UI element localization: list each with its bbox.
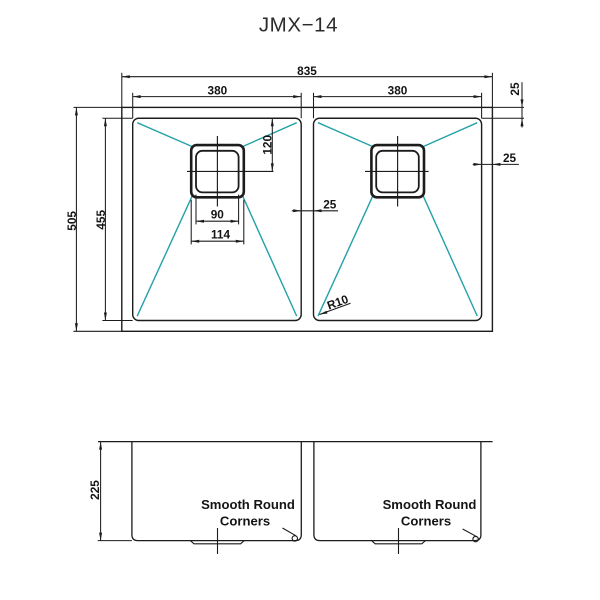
svg-text:JMX−14: JMX−14 — [259, 13, 338, 36]
svg-text:Corners: Corners — [220, 513, 270, 528]
svg-text:120: 120 — [260, 135, 274, 155]
svg-text:Smooth Round: Smooth Round — [383, 497, 477, 512]
svg-text:25: 25 — [508, 82, 522, 96]
svg-text:90: 90 — [211, 208, 225, 222]
svg-text:114: 114 — [211, 228, 230, 242]
svg-text:Smooth Round: Smooth Round — [201, 497, 295, 512]
svg-text:225: 225 — [88, 480, 102, 500]
svg-text:380: 380 — [388, 84, 408, 98]
svg-text:835: 835 — [297, 64, 317, 78]
svg-text:25: 25 — [503, 151, 517, 165]
svg-text:25: 25 — [323, 198, 337, 212]
svg-text:505: 505 — [65, 211, 79, 231]
svg-text:380: 380 — [208, 84, 228, 98]
svg-text:Corners: Corners — [401, 513, 451, 528]
svg-text:455: 455 — [94, 210, 108, 230]
